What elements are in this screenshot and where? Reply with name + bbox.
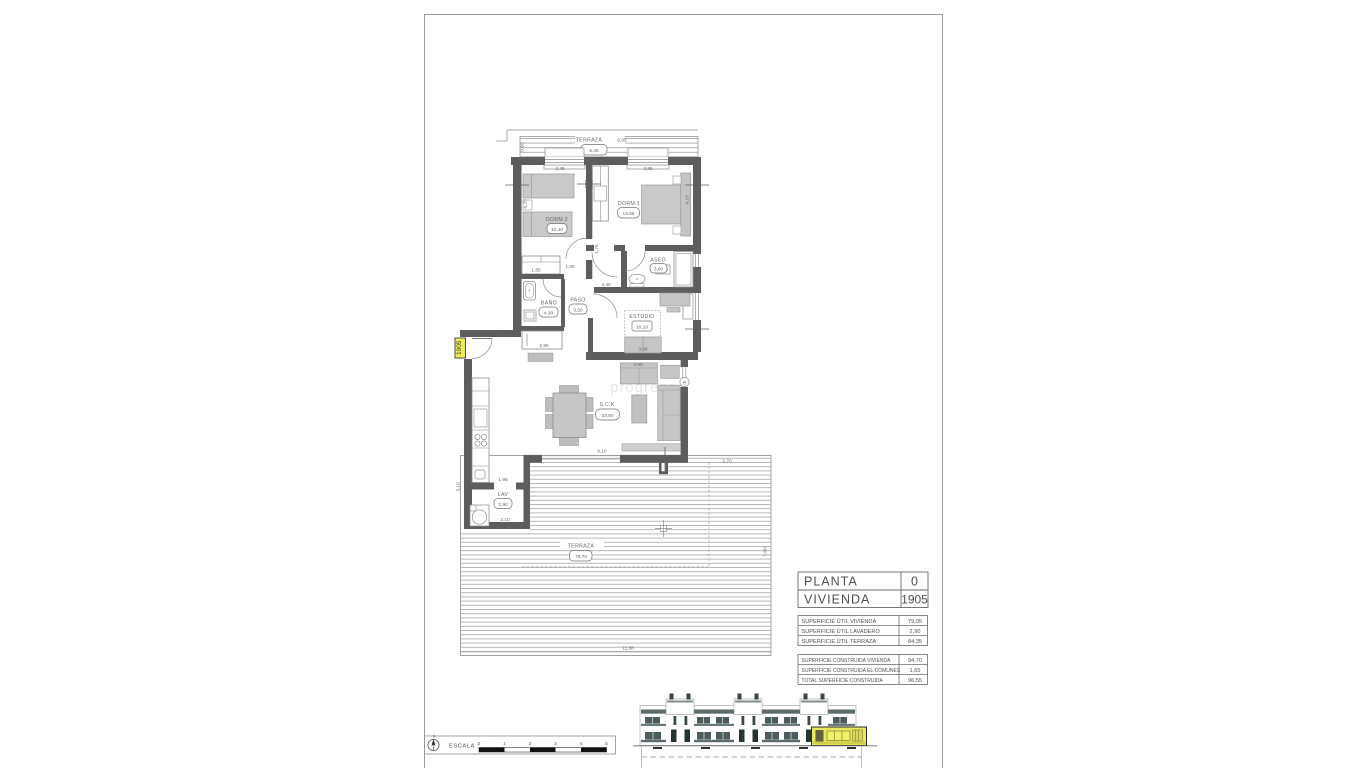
svg-text:2,45: 2,45 [555, 166, 565, 172]
svg-text:2,90: 2,90 [910, 629, 921, 635]
svg-text:TERRAZA: TERRAZA [576, 138, 603, 144]
svg-text:1,75: 1,75 [594, 244, 600, 254]
svg-text:ASEO: ASEO [650, 258, 666, 264]
svg-text:1,95: 1,95 [498, 477, 508, 483]
svg-text:78,70: 78,70 [575, 554, 587, 560]
svg-text:SUPERFICIE ÚTIL VIVIENDA: SUPERFICIE ÚTIL VIVIENDA [802, 618, 877, 625]
svg-text:3,90: 3,90 [654, 267, 664, 273]
svg-text:13,65: 13,65 [622, 211, 634, 217]
svg-text:3,50: 3,50 [573, 307, 583, 313]
svg-text:2,90: 2,90 [498, 502, 508, 508]
svg-text:5: 5 [605, 741, 608, 747]
svg-text:2,10: 2,10 [500, 517, 510, 523]
svg-text:84,35: 84,35 [908, 639, 922, 645]
svg-text:LAV: LAV [498, 492, 509, 498]
svg-text:1,75: 1,75 [500, 333, 510, 339]
svg-text:TOTAL SUPERFICIE CONSTRUIDA: TOTAL SUPERFICIE CONSTRUIDA [802, 678, 884, 684]
svg-text:3,96: 3,96 [633, 362, 643, 368]
svg-text:2,70: 2,70 [722, 459, 732, 465]
svg-text:6,95: 6,95 [617, 138, 627, 144]
svg-text:0: 0 [911, 575, 918, 589]
svg-text:VIVIENDA: VIVIENDA [804, 593, 870, 607]
svg-text:BAÑO: BAÑO [541, 300, 557, 307]
svg-text:SUPERFICIE CONSTRUIDA EL.COMUN: SUPERFICIE CONSTRUIDA EL.COMUNES [802, 668, 901, 674]
svg-text:79,95: 79,95 [908, 619, 922, 625]
svg-text:1905: 1905 [901, 593, 928, 607]
svg-text:4,30: 4,30 [544, 310, 554, 316]
svg-text:4,20: 4,20 [523, 199, 529, 209]
svg-text:ESTUDIO: ESTUDIO [629, 314, 654, 320]
svg-text:1905: 1905 [456, 340, 463, 355]
svg-text:3: 3 [554, 741, 557, 747]
svg-text:1,00: 1,00 [565, 264, 575, 270]
svg-text:10,40: 10,40 [551, 227, 563, 233]
svg-text:2,96: 2,96 [539, 343, 549, 349]
svg-text:0: 0 [478, 741, 481, 747]
svg-text:4,10: 4,10 [685, 195, 691, 205]
svg-text:3,08: 3,08 [638, 347, 648, 353]
svg-text:2: 2 [529, 741, 532, 747]
svg-text:3,85: 3,85 [643, 166, 653, 172]
svg-text:DORM.2: DORM.2 [546, 217, 568, 223]
svg-text:DORM.1: DORM.1 [618, 201, 640, 207]
svg-text:SUPERFICIE ÚTIL LAVADERO: SUPERFICIE ÚTIL LAVADERO [802, 628, 881, 635]
svg-text:0,60: 0,60 [520, 142, 526, 152]
svg-text:ESCALA :: ESCALA : [449, 743, 479, 749]
svg-text:S.C.K: S.C.K [599, 402, 614, 408]
svg-text:33,90: 33,90 [601, 413, 613, 419]
svg-text:3,10: 3,10 [456, 482, 462, 492]
svg-text:SUPERFICIE CONSTRUIDA VIVIENDA: SUPERFICIE CONSTRUIDA VIVIENDA [802, 658, 892, 664]
svg-text:11,88: 11,88 [622, 646, 634, 652]
svg-text:94,70: 94,70 [908, 658, 922, 664]
svg-text:SUPERFICIE ÚTIL TERRAZA: SUPERFICIE ÚTIL TERRAZA [802, 638, 877, 645]
svg-text:1: 1 [503, 741, 506, 747]
svg-text:7,60: 7,60 [763, 547, 769, 557]
svg-text:1,65: 1,65 [910, 668, 921, 674]
svg-text:1,85: 1,85 [531, 268, 541, 274]
svg-text:4: 4 [580, 741, 583, 747]
svg-text:TERRAZA: TERRAZA [568, 544, 595, 550]
svg-text:6,10: 6,10 [597, 449, 607, 455]
svg-text:PLANTA: PLANTA [804, 575, 858, 589]
svg-text:5,45: 5,45 [589, 148, 599, 154]
svg-text:PASO: PASO [570, 298, 585, 304]
svg-text:96,55: 96,55 [908, 678, 922, 684]
svg-text:10,10: 10,10 [636, 324, 648, 330]
svg-text:4,40: 4,40 [601, 282, 611, 288]
